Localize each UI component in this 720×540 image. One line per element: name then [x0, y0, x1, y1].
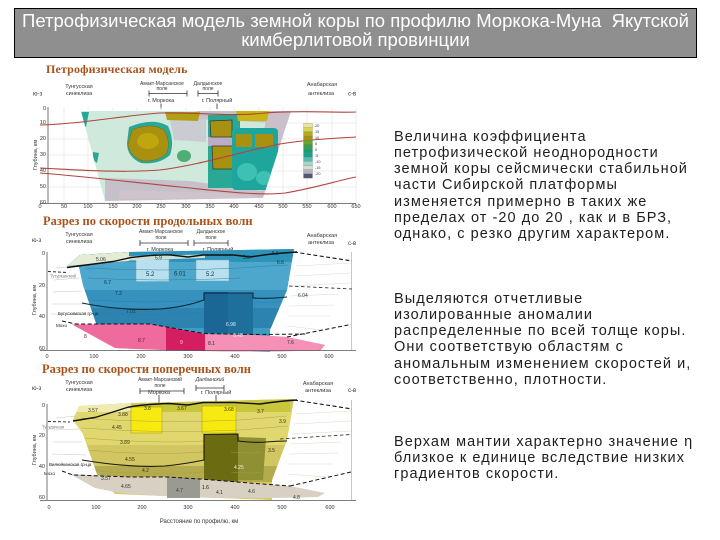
- svg-text:600: 600: [324, 354, 333, 360]
- svg-text:с-в: с-в: [348, 92, 356, 98]
- svg-text:20: 20: [315, 124, 319, 128]
- svg-text:8.7: 8.7: [138, 338, 145, 344]
- svg-text:антеклиза: антеклиза: [308, 91, 335, 97]
- svg-text:Анабарская: Анабарская: [303, 381, 333, 387]
- svg-text:7.6: 7.6: [287, 340, 294, 346]
- svg-text:3.68: 3.68: [224, 407, 234, 413]
- svg-text:Тунгусская: Тунгусская: [65, 380, 93, 386]
- svg-text:синеклиза: синеклиза: [66, 387, 93, 393]
- svg-text:300: 300: [183, 505, 192, 511]
- svg-text:5: 5: [315, 142, 317, 146]
- svg-text:150: 150: [108, 204, 117, 210]
- svg-text:3.88: 3.88: [118, 412, 128, 418]
- svg-text:40: 40: [40, 168, 46, 174]
- svg-text:6.6: 6.6: [277, 260, 284, 266]
- svg-text:0: 0: [45, 354, 48, 360]
- svg-text:100: 100: [91, 505, 100, 511]
- svg-text:0: 0: [42, 403, 45, 409]
- svg-text:20: 20: [39, 283, 45, 289]
- svg-text:Анабарская: Анабарская: [307, 82, 337, 88]
- svg-text:поле: поле: [202, 86, 213, 92]
- svg-text:200: 200: [136, 354, 145, 360]
- svg-text:350: 350: [205, 204, 214, 210]
- svg-text:5.9: 5.9: [155, 256, 162, 262]
- svg-text:5.06: 5.06: [96, 257, 106, 263]
- svg-text:4.7: 4.7: [176, 488, 183, 494]
- svg-text:600: 600: [325, 505, 334, 511]
- svg-text:4.65: 4.65: [121, 484, 131, 490]
- svg-text:4.45: 4.45: [112, 425, 122, 431]
- svg-text:Глубина, км: Глубина, км: [32, 285, 38, 315]
- svg-text:Амакт-Марсанский: Амакт-Марсанский: [138, 376, 182, 383]
- svg-text:550: 550: [302, 204, 311, 210]
- svg-text:500: 500: [278, 204, 287, 210]
- svg-text:3.5: 3.5: [268, 448, 275, 454]
- svg-text:50: 50: [61, 204, 67, 210]
- svg-text:9: 9: [180, 340, 183, 346]
- svg-text:0: 0: [47, 505, 50, 511]
- svg-text:5.5: 5.5: [272, 251, 279, 257]
- svg-text:6.7: 6.7: [104, 280, 111, 286]
- svg-text:30: 30: [40, 152, 46, 158]
- svg-text:4.1: 4.1: [216, 490, 223, 496]
- svg-text:3.57: 3.57: [101, 476, 111, 482]
- svg-text:ю-з: ю-з: [32, 386, 41, 392]
- svg-text:100: 100: [89, 354, 98, 360]
- svg-text:20: 20: [40, 136, 46, 142]
- svg-text:антеклиза: антеклиза: [308, 240, 335, 246]
- svg-text:400: 400: [230, 505, 239, 511]
- svg-text:4.55: 4.55: [125, 457, 135, 463]
- svg-text:7.01: 7.01: [126, 309, 136, 315]
- svg-text:г. Полярный: г. Полярный: [201, 389, 232, 396]
- svg-text:7.2: 7.2: [115, 291, 122, 297]
- svg-text:3.7: 3.7: [257, 409, 264, 415]
- svg-text:200: 200: [137, 505, 146, 511]
- svg-text:4.25: 4.25: [234, 465, 244, 471]
- svg-text:0: 0: [38, 204, 41, 210]
- svg-text:3.67: 3.67: [177, 406, 187, 412]
- svg-text:100: 100: [83, 204, 92, 210]
- svg-text:0: 0: [43, 106, 46, 112]
- svg-text:Тунгусская: Тунгусская: [65, 84, 93, 90]
- svg-text:ю-з: ю-з: [33, 92, 42, 98]
- svg-text:0: 0: [315, 148, 317, 152]
- svg-text:Вилюйканская гр-ца: Вилюйканская гр-ца: [49, 461, 92, 467]
- svg-text:40: 40: [39, 464, 45, 470]
- svg-text:Бугусхимская гр-ца: Бугусхимская гр-ца: [58, 311, 99, 316]
- svg-text:500: 500: [277, 354, 286, 360]
- svg-text:20: 20: [39, 433, 45, 439]
- svg-text:с-в: с-в: [348, 388, 356, 394]
- svg-text:4.2: 4.2: [142, 468, 149, 474]
- svg-text:5.2: 5.2: [206, 272, 215, 278]
- svg-text:15: 15: [315, 130, 319, 134]
- svg-text:10: 10: [315, 136, 319, 140]
- svg-text:0: 0: [42, 251, 45, 257]
- svg-text:400: 400: [229, 204, 238, 210]
- svg-text:200: 200: [132, 204, 141, 210]
- svg-text:3.9: 3.9: [279, 419, 286, 425]
- svg-text:3.8: 3.8: [144, 406, 151, 412]
- svg-text:40: 40: [39, 314, 45, 320]
- svg-text:Анабарская: Анабарская: [307, 233, 337, 239]
- svg-text:Тутурканский: Тутурканский: [50, 274, 77, 279]
- svg-text:10: 10: [40, 120, 46, 126]
- svg-text:Мохо: Мохо: [56, 323, 67, 328]
- svg-text:300: 300: [183, 354, 192, 360]
- svg-text:60: 60: [39, 346, 45, 352]
- svg-text:6.48: 6.48: [233, 333, 243, 339]
- svg-text:Тунгусская: Тунгусская: [65, 232, 93, 238]
- svg-text:Ту. удачная: Ту. удачная: [42, 425, 64, 430]
- svg-text:650: 650: [351, 204, 360, 210]
- svg-text:8: 8: [84, 334, 87, 340]
- svg-text:синеклиза: синеклиза: [66, 239, 93, 245]
- svg-text:8.1: 8.1: [208, 341, 215, 347]
- svg-text:поле: поле: [156, 86, 167, 92]
- svg-text:3.57: 3.57: [88, 408, 98, 414]
- svg-text:Глубина, км: Глубина, км: [33, 140, 39, 170]
- svg-text:Мохо: Мохо: [44, 471, 55, 476]
- svg-text:-10: -10: [315, 160, 321, 164]
- svg-text:Расстояние по профилю, км: Расстояние по профилю, км: [160, 519, 239, 525]
- svg-text:с-в: с-в: [348, 241, 356, 247]
- svg-text:г. Полярный: г. Полярный: [202, 97, 233, 104]
- svg-text:300: 300: [181, 204, 190, 210]
- svg-text:-15: -15: [315, 166, 321, 170]
- svg-text:поле: поле: [205, 235, 216, 241]
- svg-text:3.89: 3.89: [120, 440, 130, 446]
- svg-text:500: 500: [277, 505, 286, 511]
- svg-text:6.98: 6.98: [226, 322, 236, 328]
- svg-text:250: 250: [156, 204, 165, 210]
- svg-text:антеклиза: антеклиза: [305, 388, 332, 394]
- svg-text:-5: -5: [315, 154, 318, 158]
- svg-text:5.2: 5.2: [146, 272, 155, 278]
- svg-text:Моркока: Моркока: [148, 390, 171, 396]
- svg-text:Далдынский: Далдынский: [195, 376, 225, 383]
- svg-text:400: 400: [230, 354, 239, 360]
- svg-text:6.01: 6.01: [174, 272, 186, 278]
- svg-text:4.6: 4.6: [248, 489, 255, 495]
- svg-text:50: 50: [40, 184, 46, 190]
- svg-text:-20: -20: [315, 172, 321, 176]
- svg-text:поле: поле: [154, 383, 165, 389]
- svg-text:6.04: 6.04: [298, 293, 308, 299]
- svg-text:Глубина, км: Глубина, км: [32, 435, 38, 465]
- svg-text:поле: поле: [155, 235, 166, 241]
- svg-text:синеклиза: синеклиза: [66, 91, 93, 97]
- svg-text:5.8: 5.8: [243, 255, 250, 261]
- svg-text:г. Моркока: г. Моркока: [148, 98, 175, 104]
- svg-text:450: 450: [254, 204, 263, 210]
- svg-text:600: 600: [327, 204, 336, 210]
- svg-text:ю-з: ю-з: [32, 238, 41, 244]
- svg-text:1.6: 1.6: [202, 485, 209, 491]
